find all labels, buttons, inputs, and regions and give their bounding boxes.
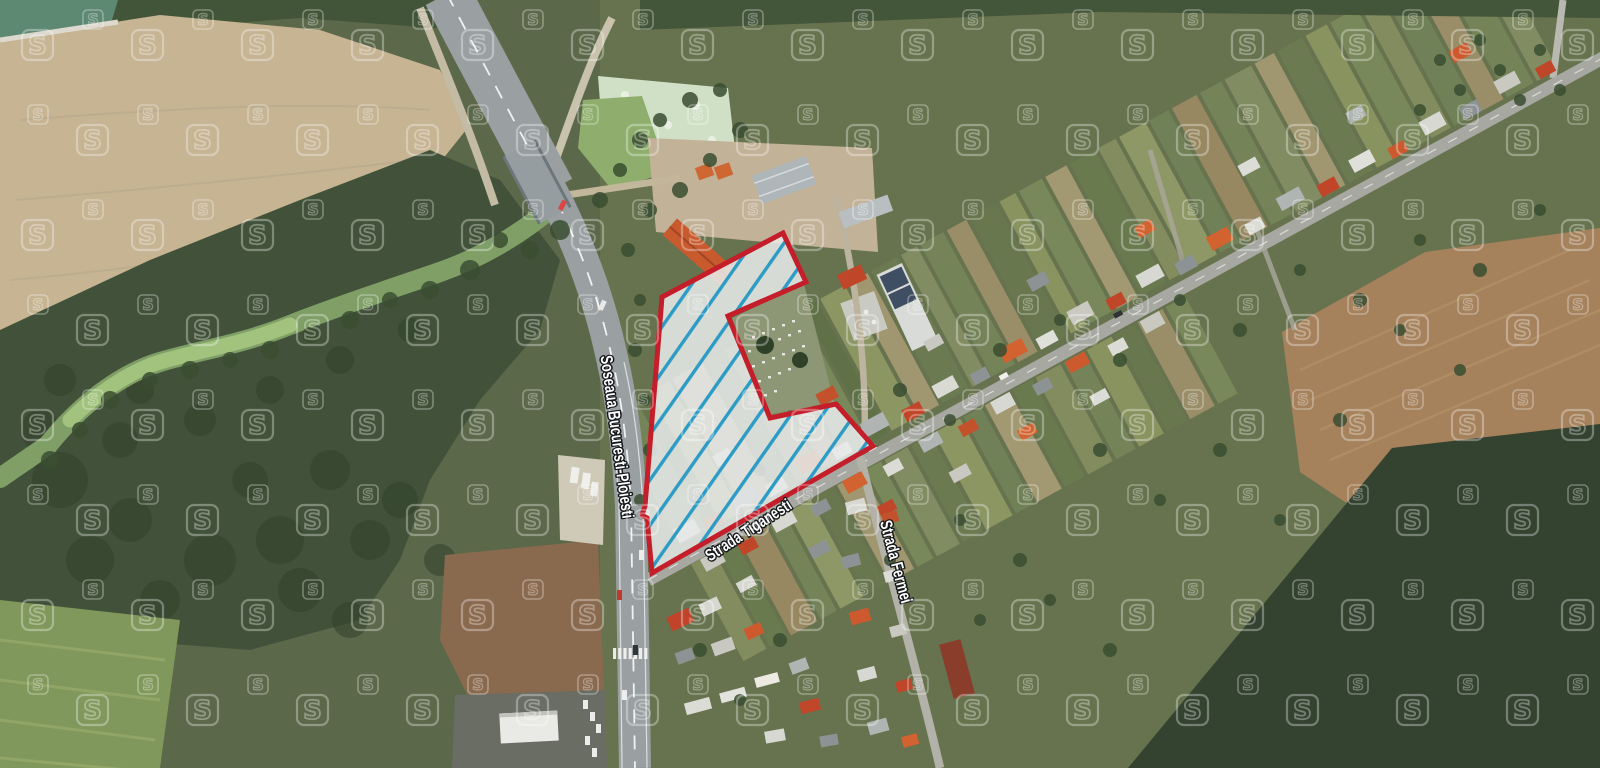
watermark-overlay bbox=[0, 0, 1600, 768]
satellite-map-canvas: S S S S bbox=[0, 0, 1600, 768]
satellite-map-view[interactable]: S S S S bbox=[0, 0, 1600, 768]
